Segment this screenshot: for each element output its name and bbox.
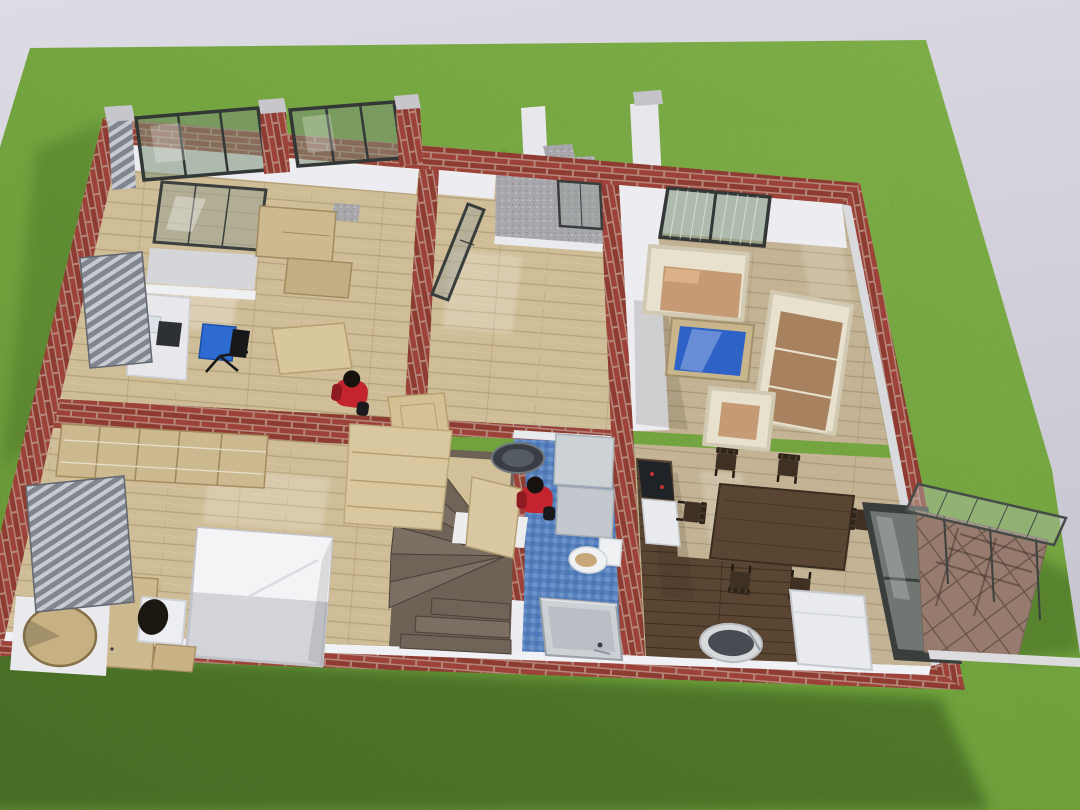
loveseat-cushion-right xyxy=(698,270,742,318)
balcony-deck xyxy=(146,248,258,290)
render-viewport xyxy=(0,0,1080,810)
entry-parapet-cap xyxy=(633,90,663,106)
pier-brick-2 xyxy=(260,112,290,174)
louvre-shutter-bedroom2 xyxy=(26,476,134,612)
pier-brick-3 xyxy=(396,108,423,166)
house-render-canvas xyxy=(0,0,1080,810)
armchair-cushion xyxy=(718,402,760,440)
skylight-group-2 xyxy=(290,102,402,166)
cooktop xyxy=(638,460,674,500)
wardrobe-row xyxy=(56,424,268,488)
face-hall-top-left xyxy=(437,170,496,199)
skylight-group-1 xyxy=(136,108,266,180)
keyboard xyxy=(156,321,182,347)
kitchen-counter xyxy=(642,499,680,546)
upper-flight-cut xyxy=(344,424,452,530)
unhung-door-1 xyxy=(272,323,352,374)
bathroom-door-open xyxy=(466,477,521,558)
wall-stairs-bathroom-parapet xyxy=(510,600,524,652)
shower-drain xyxy=(598,643,603,648)
cooktop-knob xyxy=(650,472,654,476)
louvre-nw-corner xyxy=(108,120,136,190)
fridge-cabinet xyxy=(790,590,872,670)
louvre-shutter-office xyxy=(80,252,152,368)
bedside-stool xyxy=(152,644,196,672)
bath-cabinet-upper xyxy=(554,434,614,488)
ceiling-lamp-inner xyxy=(502,449,534,467)
shower-tray-inner xyxy=(548,606,615,652)
wardrobe-cabinet-b xyxy=(284,258,352,298)
dining-table xyxy=(710,484,854,570)
bath-cabinet-lower xyxy=(556,486,614,538)
wardrobe-cabinet-a xyxy=(256,206,336,262)
cooktop-knob xyxy=(660,485,664,489)
